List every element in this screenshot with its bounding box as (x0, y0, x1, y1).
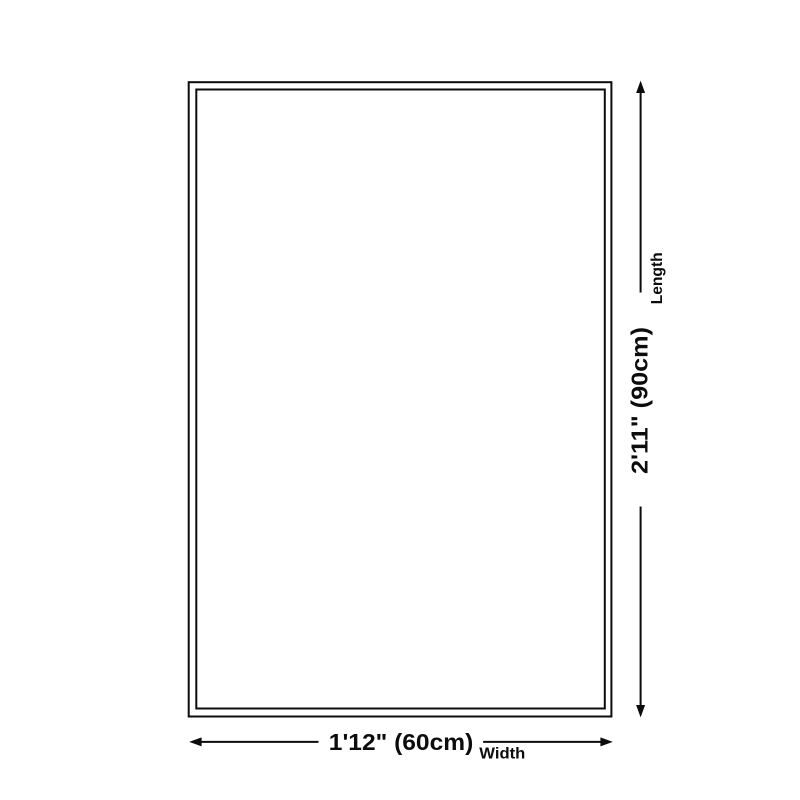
svg-text:Width: Width (479, 746, 525, 763)
svg-text:1'12" (60cm): 1'12" (60cm) (329, 729, 474, 755)
svg-text:Length: Length (649, 252, 666, 304)
svg-text:2'11" (90cm): 2'11" (90cm) (627, 327, 653, 474)
